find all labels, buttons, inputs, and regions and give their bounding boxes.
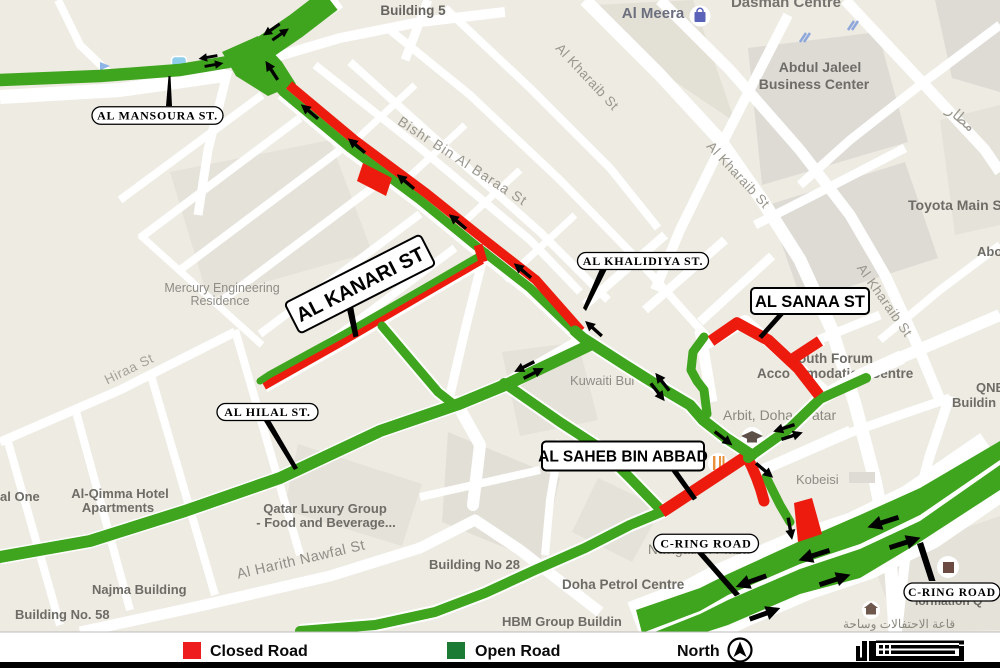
svg-text:Acco: Acco <box>757 366 790 381</box>
svg-text:Abo: Abo <box>977 244 1000 259</box>
svg-text:Kobeisi: Kobeisi <box>796 472 839 487</box>
svg-text:Building No 28: Building No 28 <box>429 557 520 572</box>
svg-text:QNB: QNB <box>976 380 1000 395</box>
svg-text:Mercury Engineering: Mercury Engineering <box>164 281 279 295</box>
svg-text:Building No. 58: Building No. 58 <box>15 607 110 622</box>
svg-text:Buildin: Buildin <box>952 395 996 410</box>
svg-text:Toyota Main S: Toyota Main S <box>908 197 1000 213</box>
svg-text:Dasman Centre: Dasman Centre <box>731 0 841 11</box>
svg-text:Abdul Jaleel: Abdul Jaleel <box>779 59 861 75</box>
svg-text:Najma Building: Najma Building <box>92 582 187 597</box>
svg-text:AL SAHEB BIN ABBAD: AL SAHEB BIN ABBAD <box>538 449 708 466</box>
svg-text:Open Road: Open Road <box>475 643 560 660</box>
svg-text:Kuwaiti Bui: Kuwaiti Bui <box>570 373 634 388</box>
svg-text:C-RING ROAD: C-RING ROAD <box>660 537 751 551</box>
svg-text:North: North <box>677 643 720 660</box>
svg-text:قاعة الاحتفالات وساحة: قاعة الاحتفالات وساحة <box>843 617 955 631</box>
svg-text:Arbit, Doha: Arbit, Doha <box>723 407 793 423</box>
svg-text:HBM Group Buildin: HBM Group Buildin <box>502 614 622 629</box>
svg-text:AL SANAA ST: AL SANAA ST <box>755 293 865 311</box>
svg-text:al One: al One <box>0 489 40 504</box>
svg-text:Business Center: Business Center <box>759 76 870 92</box>
svg-text:C-RING ROAD: C-RING ROAD <box>908 587 996 599</box>
svg-text:AL HILAL ST.: AL HILAL ST. <box>224 405 310 419</box>
svg-text:Apartments: Apartments <box>82 500 154 515</box>
svg-text:Closed Road: Closed Road <box>210 643 308 660</box>
svg-text:Al Meera: Al Meera <box>622 5 685 22</box>
svg-text:Qatar Luxury Group: Qatar Luxury Group <box>263 501 387 516</box>
svg-text:Building 5: Building 5 <box>380 3 446 18</box>
svg-text:AL MANSOURA ST.: AL MANSOURA ST. <box>97 109 218 123</box>
svg-text:AL KHALIDIYA ST.: AL KHALIDIYA ST. <box>583 254 704 268</box>
svg-text:Al-Qimma Hotel: Al-Qimma Hotel <box>71 486 169 501</box>
svg-text:Residence: Residence <box>190 294 249 308</box>
svg-text:Doha Petrol Centre: Doha Petrol Centre <box>562 577 685 592</box>
svg-text:- Food and Beverage...: - Food and Beverage... <box>256 515 395 530</box>
